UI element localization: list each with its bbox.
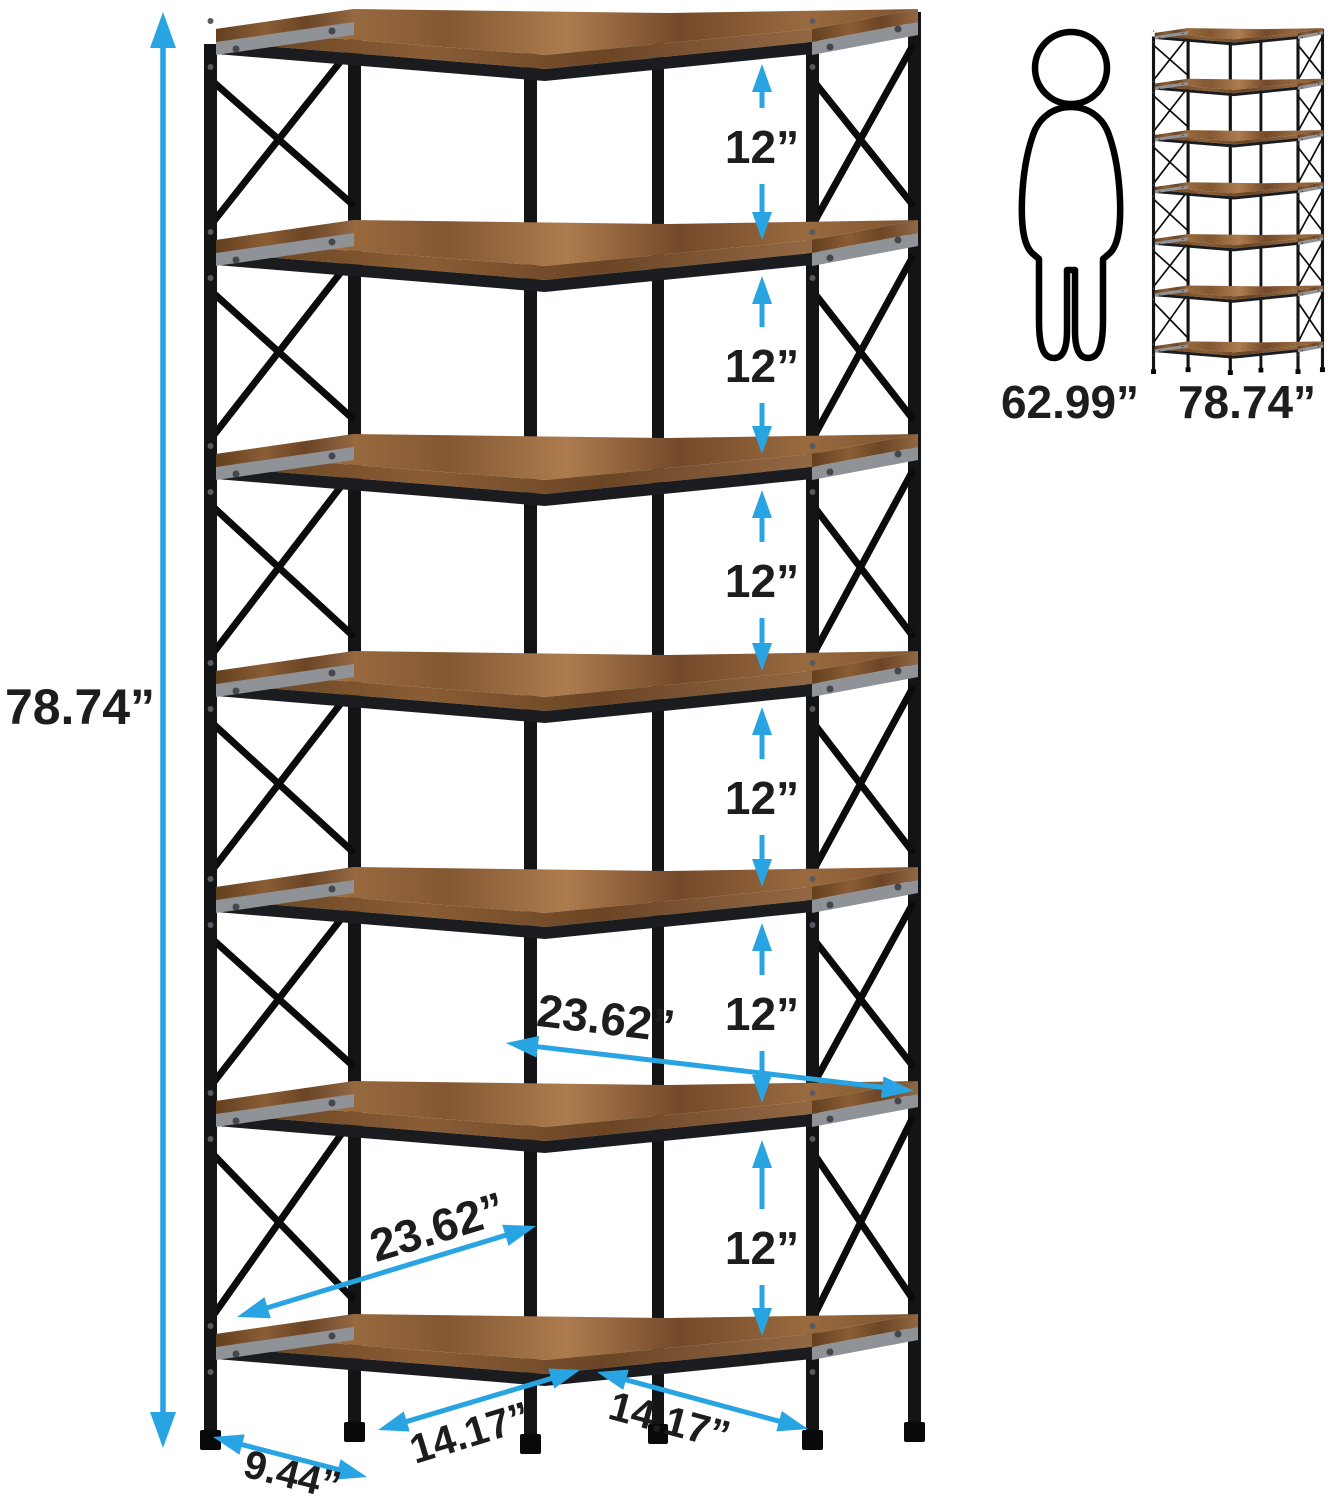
- screw-icon: [1301, 242, 1303, 244]
- screw-icon: [810, 1369, 816, 1375]
- screw-icon: [810, 443, 816, 449]
- screw-icon: [810, 1323, 816, 1329]
- screw-icon: [1301, 138, 1303, 140]
- screw-icon: [1153, 195, 1154, 196]
- arrowhead: [752, 1140, 772, 1168]
- screw-icon: [208, 275, 214, 281]
- arrowhead: [752, 490, 772, 518]
- x-brace: [1153, 37, 1187, 80]
- screw-icon: [810, 229, 816, 235]
- screw-icon: [895, 884, 902, 891]
- screw-icon: [208, 64, 214, 70]
- screw-icon: [1153, 299, 1154, 300]
- foot-pad: [1259, 368, 1264, 373]
- foot-pad: [1295, 369, 1300, 374]
- x-brace: [1153, 88, 1187, 132]
- screw-icon: [827, 255, 834, 262]
- x-brace: [1298, 295, 1322, 343]
- bookshelf-dimension-diagram: 78.74” 12” 12” 12” 12” 12” 12” 23.62” 23…: [0, 0, 1328, 1500]
- screw-icon: [1182, 346, 1184, 348]
- screw-icon: [233, 1118, 240, 1125]
- screw-icon: [810, 18, 816, 24]
- screw-icon: [1297, 143, 1298, 144]
- screw-icon: [1301, 87, 1303, 89]
- screw-icon: [1297, 288, 1298, 289]
- screw-icon: [1297, 299, 1298, 300]
- arrowhead: [752, 64, 772, 92]
- x-brace: [812, 1119, 912, 1320]
- shelf-spacing-label-5: 12”: [725, 988, 799, 1040]
- screw-icon: [208, 229, 214, 235]
- x-brace: [210, 47, 352, 226]
- screw-icon: [810, 876, 816, 882]
- screw-icon: [1159, 243, 1161, 245]
- shelf-spacing-label-3: 12”: [725, 555, 799, 607]
- screw-icon: [329, 670, 336, 677]
- reference-height-label: 78.74”: [1178, 376, 1316, 428]
- screw-icon: [1297, 132, 1298, 133]
- screw-icon: [827, 902, 834, 909]
- screw-icon: [1153, 344, 1154, 345]
- screw-icon: [1159, 191, 1161, 193]
- person-height-label: 62.99”: [1001, 376, 1139, 428]
- arrowhead: [150, 1412, 176, 1448]
- screw-icon: [1297, 355, 1298, 356]
- x-brace: [1298, 139, 1322, 183]
- x-brace: [210, 472, 352, 657]
- dimension-arrow: [752, 707, 772, 759]
- dimension-arrow: [752, 276, 772, 327]
- screw-icon: [1182, 33, 1184, 35]
- screw-icon: [1297, 30, 1298, 31]
- x-brace: [1298, 191, 1322, 235]
- screw-icon: [810, 1090, 816, 1096]
- screw-icon: [1153, 81, 1154, 82]
- frame-post: [1152, 37, 1155, 374]
- screw-icon: [329, 1333, 336, 1340]
- screw-icon: [1318, 238, 1320, 240]
- arrowhead: [752, 707, 772, 735]
- screw-icon: [895, 26, 902, 33]
- screw-icon: [1318, 345, 1320, 347]
- screw-icon: [1159, 37, 1161, 39]
- screw-icon: [1301, 294, 1303, 296]
- arrowhead: [752, 923, 772, 951]
- screw-icon: [233, 1351, 240, 1358]
- x-brace: [1298, 88, 1322, 132]
- screw-icon: [895, 1098, 902, 1105]
- x-brace: [1153, 243, 1187, 287]
- screw-icon: [827, 44, 834, 51]
- screw-icon: [1182, 239, 1184, 241]
- screw-icon: [1297, 41, 1298, 42]
- screw-icon: [208, 922, 214, 928]
- screw-icon: [1182, 135, 1184, 137]
- dimension-arrow: [752, 923, 772, 975]
- screw-icon: [1297, 195, 1298, 196]
- screw-icon: [1153, 143, 1154, 144]
- screw-icon: [1301, 191, 1303, 193]
- person-head-icon: [1035, 32, 1107, 104]
- screw-icon: [208, 876, 214, 882]
- screw-icon: [1159, 88, 1161, 90]
- screw-icon: [810, 706, 816, 712]
- screw-icon: [895, 451, 902, 458]
- screw-icon: [208, 660, 214, 666]
- mini-bookshelf-illustration: [1151, 28, 1325, 375]
- screw-icon: [1297, 247, 1298, 248]
- screw-icon: [827, 1116, 834, 1123]
- corner-bookshelf-illustration: [200, 9, 925, 1454]
- screw-icon: [233, 688, 240, 695]
- screw-icon: [208, 1369, 214, 1375]
- screw-icon: [208, 489, 214, 495]
- screw-icon: [1153, 184, 1154, 185]
- x-brace: [812, 258, 912, 440]
- screw-icon: [233, 471, 240, 478]
- dimension-arrow: [752, 490, 772, 542]
- x-brace: [210, 905, 352, 1087]
- arrowhead: [150, 12, 176, 48]
- foot-pad: [1186, 367, 1191, 372]
- x-brace: [1153, 295, 1187, 343]
- screw-icon: [1153, 288, 1154, 289]
- screw-icon: [1318, 32, 1320, 34]
- x-brace: [1298, 243, 1322, 287]
- screw-icon: [329, 239, 336, 246]
- screw-icon: [1297, 81, 1298, 82]
- screw-icon: [208, 706, 214, 712]
- shelf-spacing-label-4: 12”: [725, 772, 799, 824]
- depth-label: 9.44”: [239, 1442, 345, 1500]
- screw-icon: [1318, 289, 1320, 291]
- screw-icon: [1182, 83, 1184, 85]
- screw-icon: [208, 1323, 214, 1329]
- shelf-spacing-label-6: 12”: [725, 1222, 799, 1274]
- total-height-label: 78.74”: [5, 679, 155, 735]
- arrow-line: [523, 1045, 896, 1089]
- foot-pad: [1320, 367, 1325, 372]
- screw-icon: [233, 257, 240, 264]
- arrowhead: [776, 1411, 808, 1431]
- screw-icon: [1153, 132, 1154, 133]
- screw-icon: [895, 237, 902, 244]
- screw-icon: [329, 1100, 336, 1107]
- screw-icon: [233, 46, 240, 53]
- screw-icon: [827, 1349, 834, 1356]
- screw-icon: [810, 275, 816, 281]
- screw-icon: [208, 18, 214, 24]
- screw-icon: [827, 686, 834, 693]
- x-brace: [210, 258, 352, 440]
- x-brace: [812, 689, 912, 873]
- screw-icon: [810, 660, 816, 666]
- foot-pad: [802, 1430, 823, 1450]
- arrowhead: [752, 276, 772, 304]
- screw-icon: [1318, 83, 1320, 85]
- screw-icon: [895, 668, 902, 675]
- screw-icon: [1182, 290, 1184, 292]
- screw-icon: [1318, 134, 1320, 136]
- foot-pad: [1151, 369, 1156, 374]
- x-brace: [1298, 37, 1322, 80]
- screw-icon: [1153, 247, 1154, 248]
- screw-icon: [1153, 236, 1154, 237]
- screw-icon: [1318, 186, 1320, 188]
- foot-pad: [1228, 370, 1233, 375]
- foot-pad: [904, 1422, 925, 1442]
- screw-icon: [810, 1136, 816, 1142]
- x-brace: [210, 689, 352, 873]
- screw-icon: [1297, 236, 1298, 237]
- screw-icon: [1159, 294, 1161, 296]
- arrowhead: [237, 1297, 271, 1318]
- screw-icon: [1153, 30, 1154, 31]
- screw-icon: [233, 904, 240, 911]
- x-brace: [812, 905, 912, 1087]
- screw-icon: [1297, 344, 1298, 345]
- screw-icon: [810, 922, 816, 928]
- foot-pad: [344, 1422, 365, 1442]
- screw-icon: [1301, 350, 1303, 352]
- screw-icon: [1297, 92, 1298, 93]
- shelf-spacing-label-1: 12”: [725, 121, 799, 173]
- screw-icon: [1159, 350, 1161, 352]
- screw-icon: [1159, 139, 1161, 141]
- screw-icon: [1297, 184, 1298, 185]
- screw-icon: [1301, 36, 1303, 38]
- screw-icon: [329, 886, 336, 893]
- frame-post: [204, 44, 217, 1448]
- screw-icon: [329, 28, 336, 35]
- screw-icon: [208, 443, 214, 449]
- product-dimension-page: { "diagram": { "labels": { "total_height…: [0, 0, 1328, 1500]
- screw-icon: [810, 64, 816, 70]
- screw-icon: [895, 1331, 902, 1338]
- arrowhead: [506, 1036, 539, 1058]
- dimension-arrow: [752, 64, 772, 108]
- screw-icon: [1182, 187, 1184, 189]
- screw-icon: [208, 1090, 214, 1096]
- screw-icon: [329, 453, 336, 460]
- screw-icon: [1153, 41, 1154, 42]
- screw-icon: [827, 469, 834, 476]
- person-body-icon: [1022, 107, 1120, 358]
- screw-icon: [810, 489, 816, 495]
- dimension-arrow: [752, 1140, 772, 1209]
- shelf-spacing-label-2: 12”: [725, 340, 799, 392]
- x-brace: [1153, 191, 1187, 235]
- x-brace: [812, 472, 912, 657]
- screw-icon: [1153, 355, 1154, 356]
- screw-icon: [1153, 92, 1154, 93]
- person-height-icon: [1022, 32, 1120, 358]
- x-brace: [1153, 139, 1187, 183]
- x-brace: [812, 47, 912, 226]
- screw-icon: [208, 1136, 214, 1142]
